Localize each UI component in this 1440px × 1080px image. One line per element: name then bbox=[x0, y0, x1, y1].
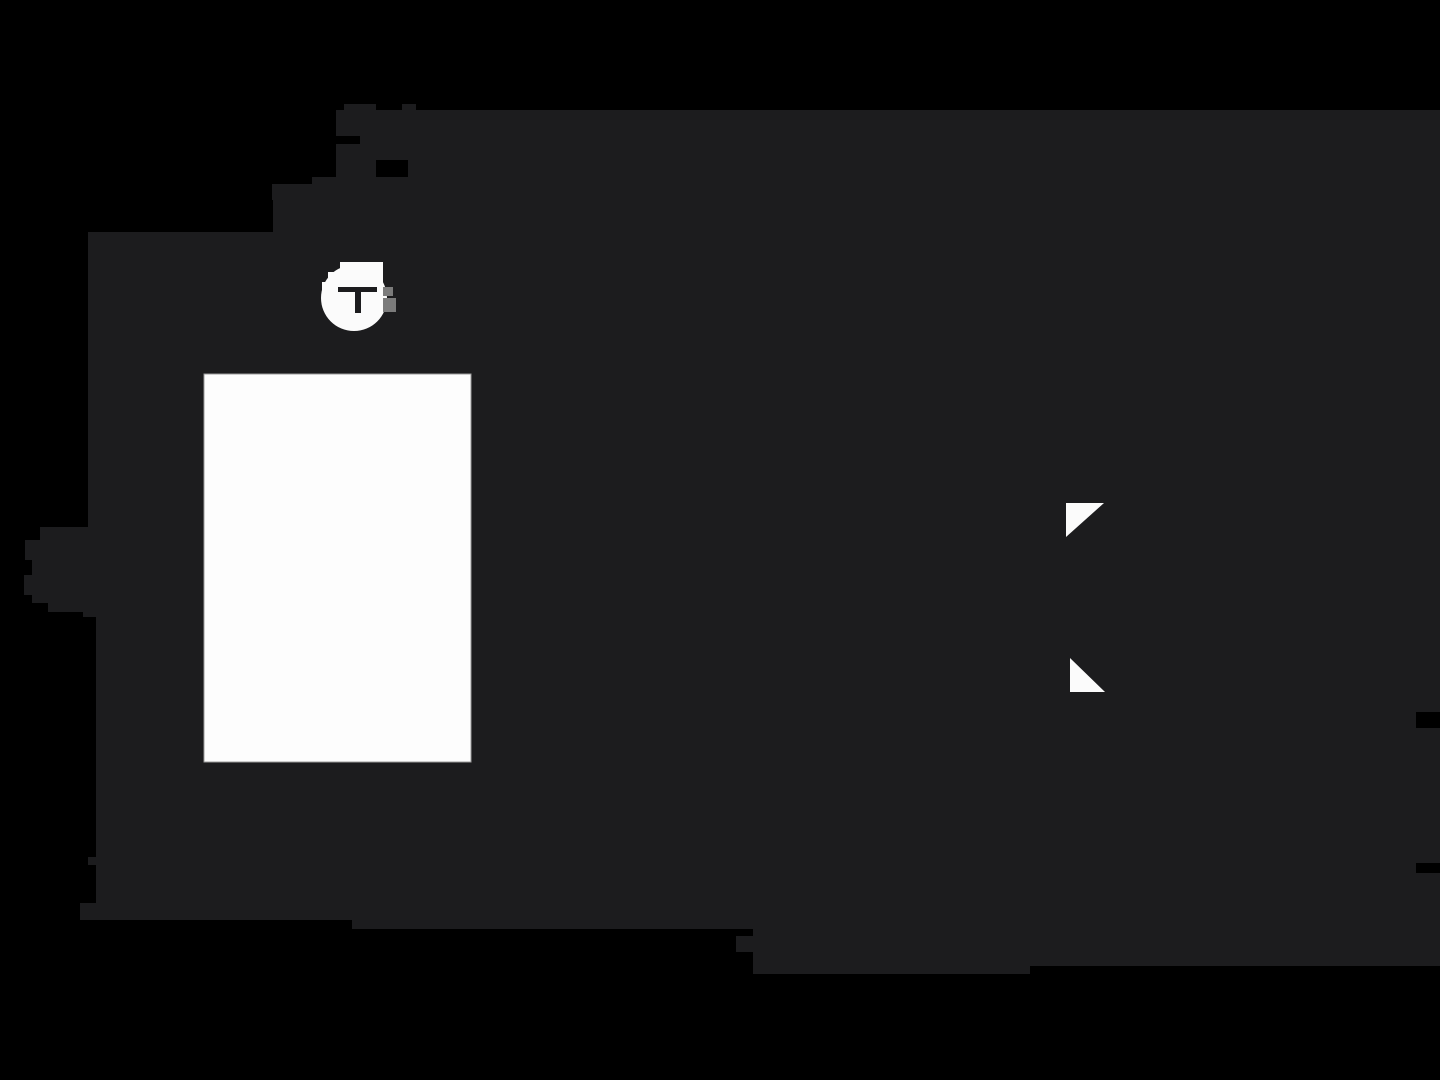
dark-blob-step-bar bbox=[272, 184, 312, 200]
gray-pixel-chunk bbox=[383, 298, 396, 312]
t-glyph-stem bbox=[355, 287, 361, 313]
scene-canvas: T bbox=[0, 0, 1440, 1080]
background-notch bbox=[376, 160, 408, 177]
screen-background: T bbox=[0, 0, 1440, 1080]
gray-pixel-chunk bbox=[383, 287, 393, 296]
white-panel bbox=[204, 374, 471, 762]
background-notch bbox=[336, 136, 360, 144]
